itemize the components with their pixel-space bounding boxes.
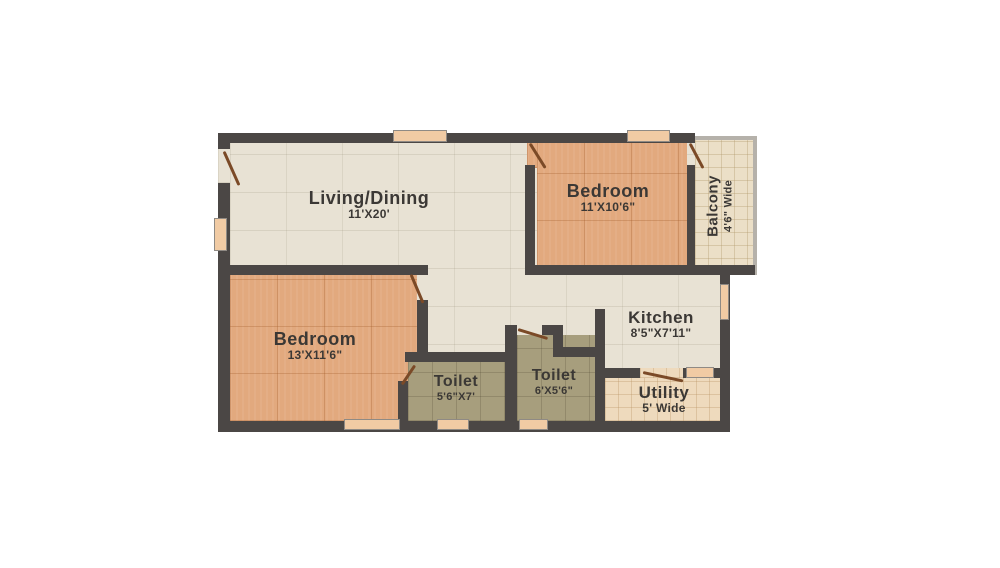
window-kitchen-utility (686, 367, 714, 378)
wall-between-toilets (505, 325, 517, 421)
balcony-railing-top (693, 136, 757, 140)
living-dining-name: Living/Dining (309, 188, 430, 208)
wall-toilet-attached-left (398, 381, 408, 421)
label-bedroom-top: Bedroom 11'X10'6" (567, 181, 650, 215)
label-toilet-common: Toilet 6'X5'6" (532, 367, 576, 397)
label-bedroom-bottom: Bedroom 13'X11'6" (274, 329, 357, 363)
balcony-dims: 4'6" Wide (722, 175, 734, 237)
toilet-attached-name: Toilet (434, 373, 478, 391)
kitchen-dims: 8'5"X7'11" (628, 327, 694, 340)
wall-mid-horizontal-right (525, 265, 755, 275)
label-utility: Utility 5' Wide (639, 383, 690, 415)
window-bottom-toilet-common (519, 419, 548, 430)
utility-name: Utility (639, 383, 690, 402)
wall-top (218, 133, 695, 143)
window-bottom-bedroom (344, 419, 400, 430)
label-kitchen: Kitchen 8'5"X7'11" (628, 308, 694, 340)
label-toilet-attached: Toilet 5'6"X7' (434, 373, 478, 403)
balcony-railing-right (753, 136, 757, 275)
label-living-dining: Living/Dining 11'X20' (309, 188, 430, 222)
bedroom-top-name: Bedroom (567, 181, 650, 201)
bedroom-top-dims: 11'X10'6" (567, 201, 650, 214)
wall-bottom (218, 421, 730, 432)
wall-bedroom-balcony (687, 165, 695, 275)
wall-toilet-attached-top (405, 352, 517, 362)
window-top-living (393, 130, 447, 142)
window-bottom-toilet-attached (437, 419, 469, 430)
living-dining-dims: 11'X20' (309, 208, 430, 221)
window-right-kitchen (720, 284, 729, 320)
wall-kitchen-left (595, 309, 605, 421)
toilet-common-name: Toilet (532, 367, 576, 385)
window-top-bedroom (627, 130, 670, 142)
balcony-name: Balcony (705, 175, 722, 237)
wall-bedroom-top-left (525, 165, 535, 275)
wall-mid-horizontal-left (218, 265, 428, 275)
toilet-attached-dims: 5'6"X7' (434, 391, 478, 403)
bedroom-bottom-dims: 13'X11'6" (274, 349, 357, 362)
kitchen-name: Kitchen (628, 308, 694, 327)
label-balcony: Balcony 4'6" Wide (705, 175, 734, 237)
toilet-common-dims: 6'X5'6" (532, 385, 576, 397)
bedroom-bottom-name: Bedroom (274, 329, 357, 349)
window-left-living (214, 218, 227, 251)
floor-plan: Living/Dining 11'X20' Bedroom 11'X10'6" … (0, 0, 1000, 568)
utility-dims: 5' Wide (639, 402, 690, 415)
